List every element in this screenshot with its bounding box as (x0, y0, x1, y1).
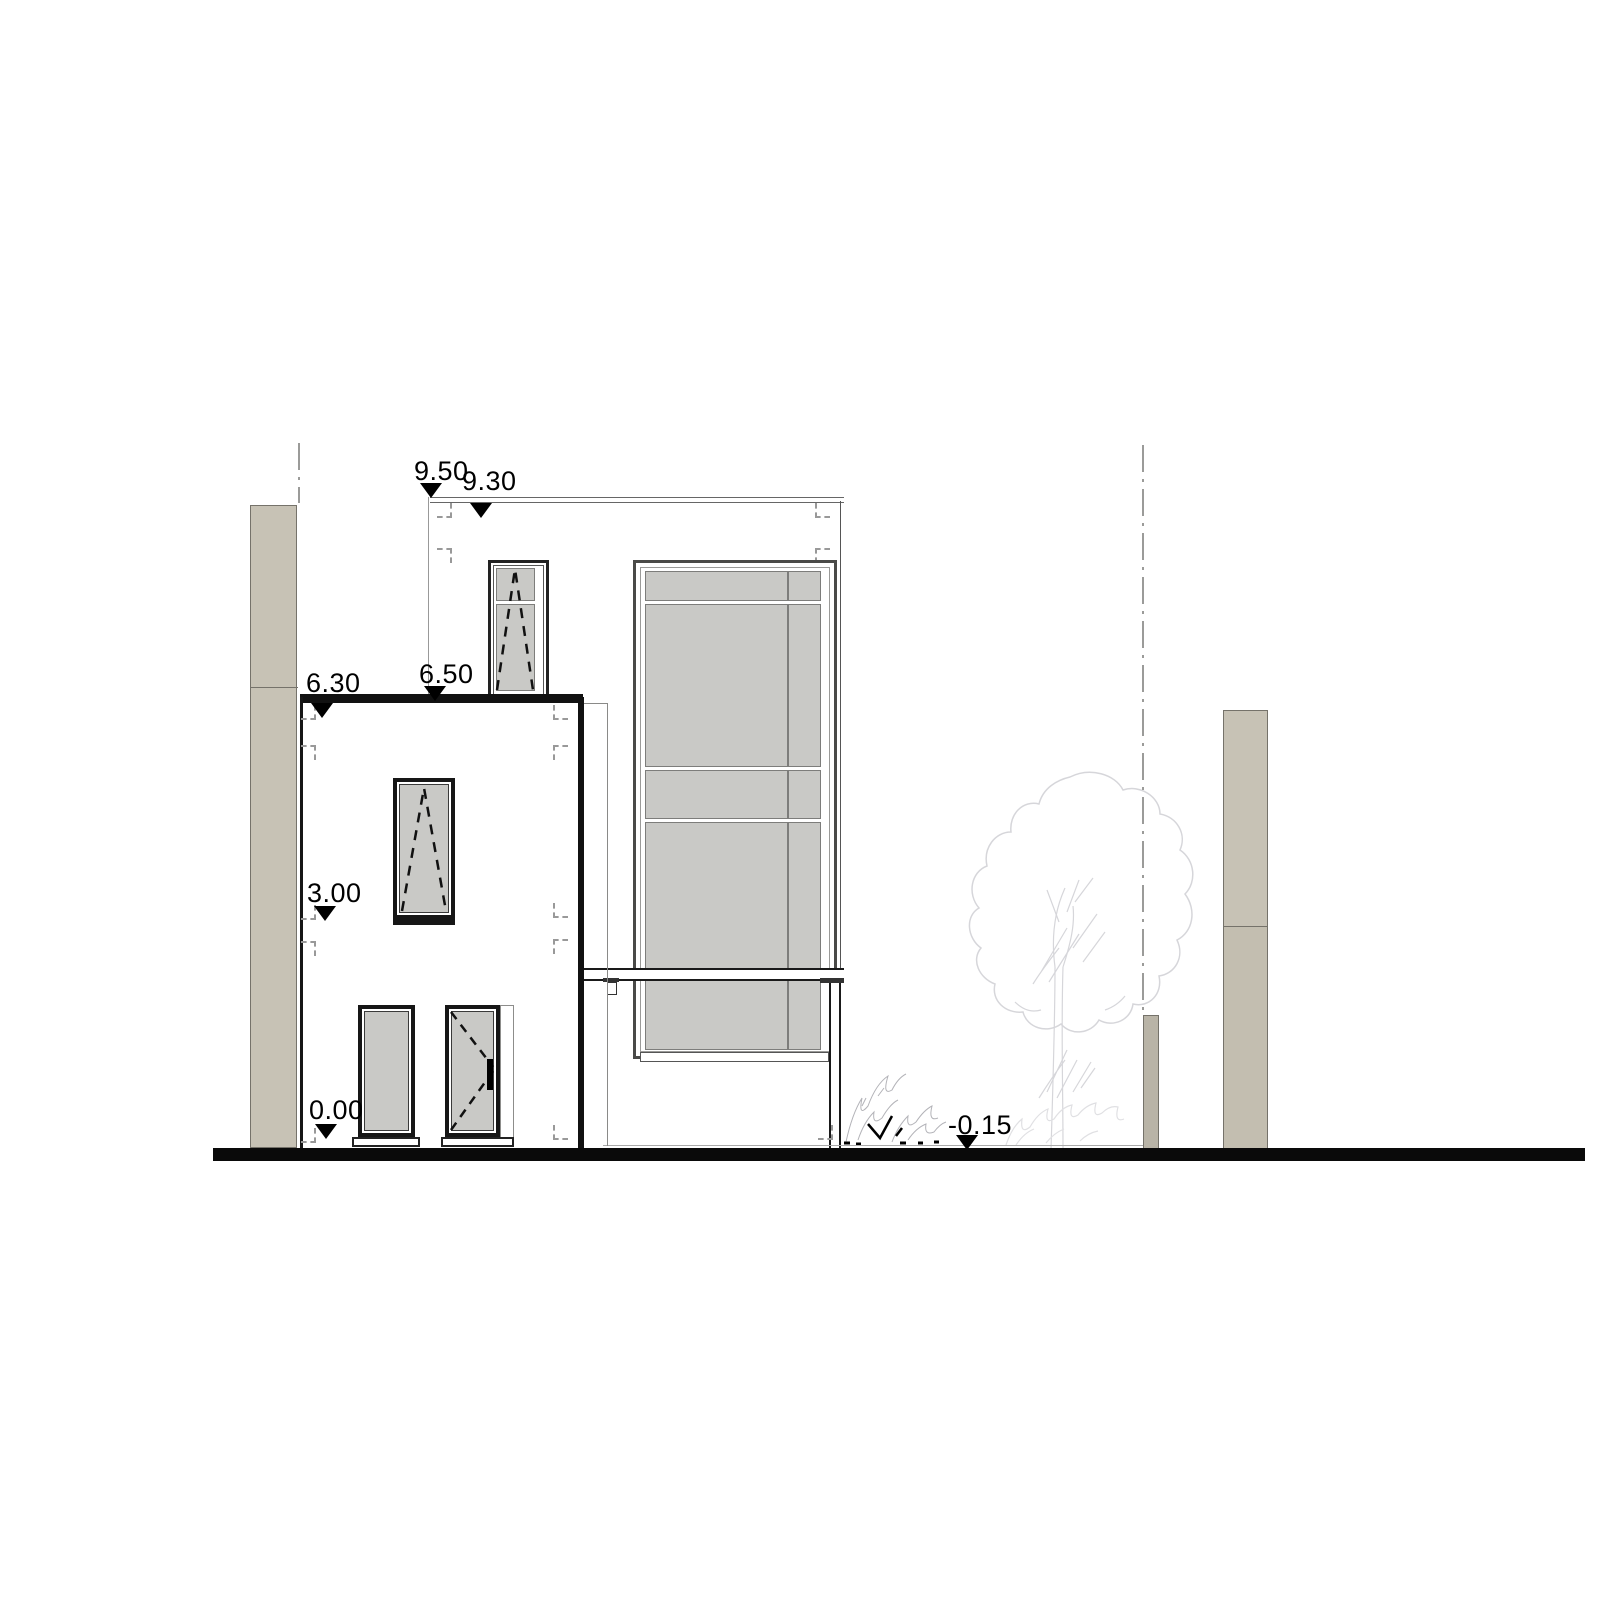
door-leaf-open (500, 1005, 514, 1142)
glass-pane (645, 571, 788, 601)
house-return-wall-h (583, 703, 607, 704)
entry-door (445, 1005, 500, 1137)
tree-branches-lower (1039, 1050, 1095, 1098)
level-triangle-9-50 (420, 483, 442, 498)
hidden-edge-mark (553, 903, 568, 918)
glass-pane (645, 770, 788, 819)
curtain-wall-sill (640, 1052, 829, 1062)
house-return-wall-v (607, 703, 608, 1146)
hidden-edge-mark (437, 548, 452, 563)
house-left-edge (300, 697, 303, 1148)
tower-curtain-wall (633, 560, 837, 1059)
canopy-beam (559, 968, 844, 981)
level-label-9-30: 9.30 (462, 466, 517, 496)
shrub-right-faint (1000, 1093, 1130, 1150)
hidden-edge-mark (553, 1125, 568, 1140)
hidden-edge-mark (553, 939, 568, 954)
tree-canopy-detail (1015, 996, 1125, 1011)
hidden-edge-mark (301, 745, 316, 760)
hidden-edge-mark (818, 1125, 833, 1140)
level-triangle-6-30 (311, 703, 333, 718)
shrub-sketch (1016, 1129, 1098, 1145)
garden-wall-post (1143, 1015, 1159, 1149)
canopy-post (829, 983, 841, 1148)
glass-pane (788, 770, 821, 819)
level-triangle-6-50 (424, 686, 446, 701)
level-triangle-9-30 (470, 503, 492, 518)
ground-tick-marks (844, 1142, 939, 1144)
window-sill-step (352, 1137, 420, 1147)
glass-pane (645, 604, 788, 767)
level-label-9-50: 9.50 (414, 456, 469, 486)
ground-line (213, 1148, 1585, 1161)
hidden-edge-mark (815, 503, 830, 518)
glass-pane (645, 822, 788, 1050)
glass-pane (788, 822, 821, 1050)
house-right-edge (578, 697, 584, 1148)
garden-wall-tall-lower (1223, 926, 1268, 1149)
ground-check-mark (868, 1116, 902, 1138)
door-handle (487, 1059, 493, 1090)
hidden-edge-mark (301, 941, 316, 956)
boundary-line-right (1142, 445, 1144, 1015)
level-label-3-00: 3.00 (307, 878, 362, 908)
tree-branches (1033, 878, 1105, 984)
party-wall-left-joint (250, 687, 298, 688)
terrain-edge-line (603, 1145, 1143, 1146)
glass-pane (788, 604, 821, 767)
stair-window (488, 560, 549, 703)
entry-side-window (358, 1005, 415, 1137)
level-label-6-30: 6.30 (306, 668, 361, 698)
garden-wall-tall-upper (1223, 710, 1268, 928)
shrub-sketch (892, 1106, 938, 1142)
hidden-edge-mark (553, 705, 568, 720)
shrub-left (838, 1048, 953, 1148)
canopy-bracket-left-stem (607, 982, 617, 995)
glass-pane (788, 571, 821, 601)
boundary-line-left (298, 443, 300, 503)
window-opening-symbol (491, 563, 540, 694)
level-triangle-3-00 (314, 906, 336, 921)
level-label-6-50: 6.50 (419, 659, 474, 689)
level-triangle-0-00 (315, 1124, 337, 1139)
tree-canopy-outline (969, 772, 1192, 1032)
window-opening-symbol (397, 782, 451, 915)
roof-slab-line (430, 497, 844, 503)
shrub-sketch (1006, 1103, 1124, 1145)
party-wall-left (250, 505, 297, 1148)
upper-floor-window (393, 778, 455, 925)
door-sill-step (441, 1137, 514, 1147)
elevation-sheet: 9.50 9.30 6.50 6.30 3.00 0.00 -0.15 (0, 0, 1600, 1600)
hidden-edge-mark (437, 503, 452, 518)
hidden-edge-mark (553, 745, 568, 760)
level-label-0-00: 0.00 (309, 1095, 364, 1125)
hidden-edge-mark (301, 1128, 316, 1143)
